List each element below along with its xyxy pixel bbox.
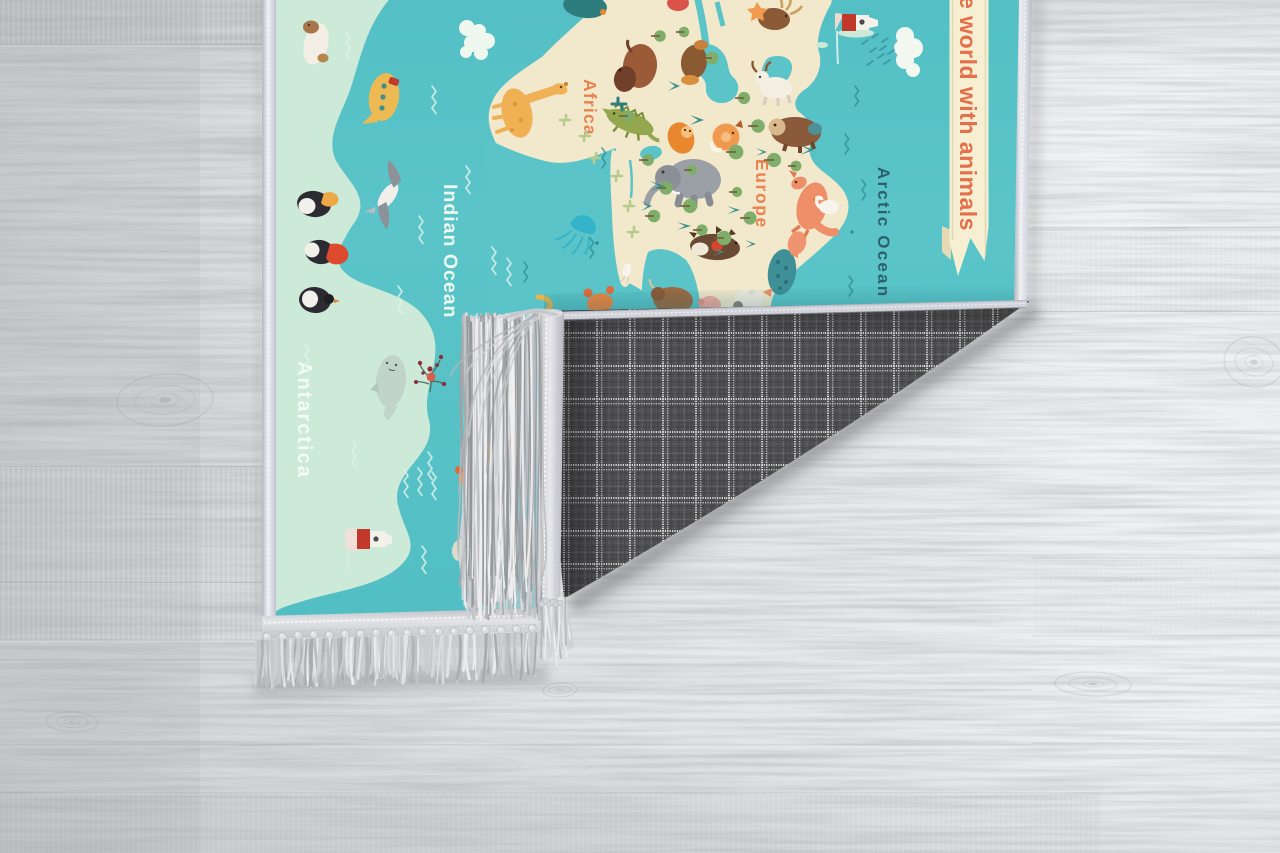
svg-text:Indian Ocean: Indian Ocean (439, 184, 461, 318)
svg-text:Arctic Ocean: Arctic Ocean (874, 167, 893, 298)
svg-text:Antarctica: Antarctica (293, 361, 315, 479)
svg-text:Africa: Africa (580, 79, 600, 136)
svg-text:e world with animals: e world with animals (955, 0, 981, 231)
